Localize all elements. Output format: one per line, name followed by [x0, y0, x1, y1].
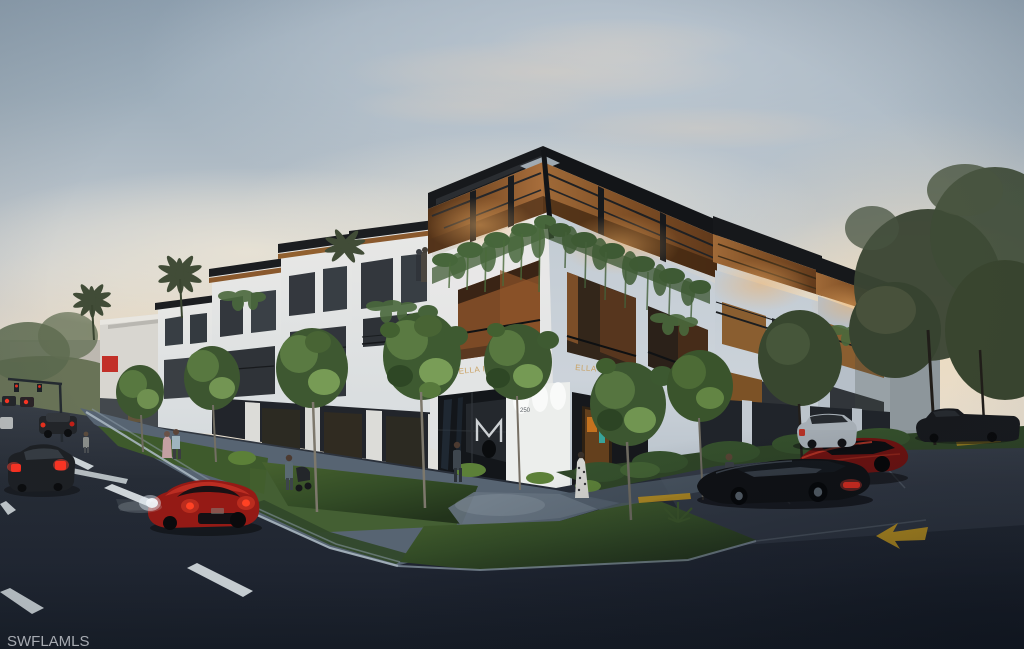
svg-text:SWFLAMLS: SWFLAMLS: [7, 633, 90, 649]
